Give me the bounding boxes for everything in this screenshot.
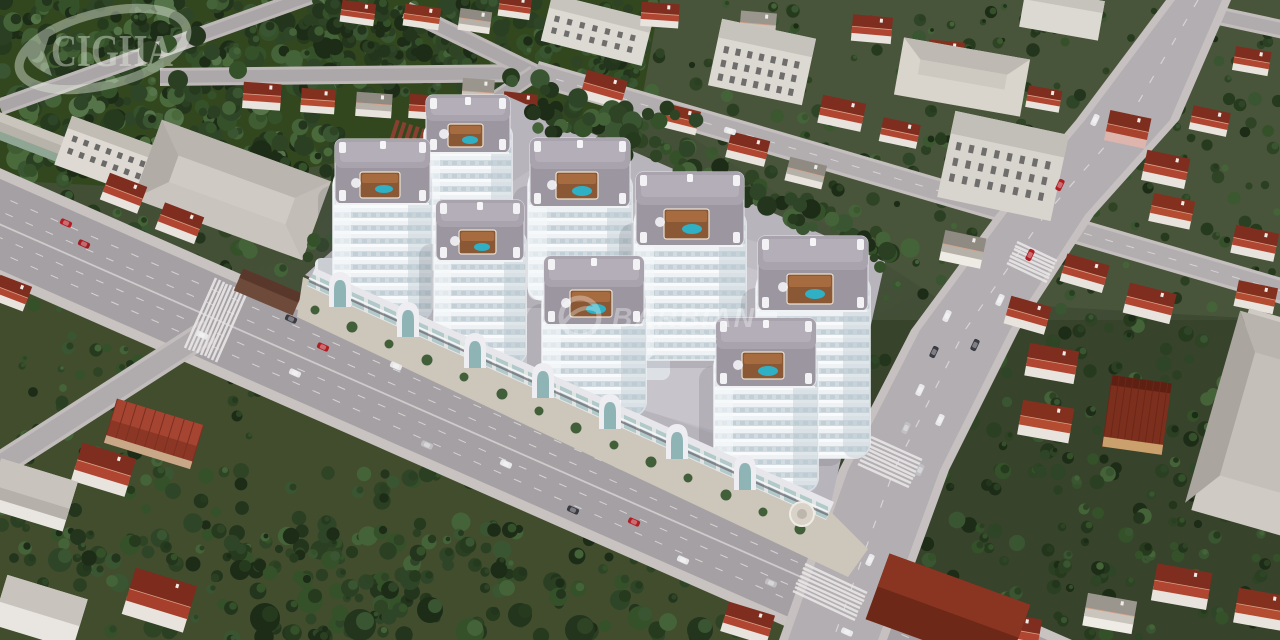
svg-text:MÓVEIS: MÓVEIS bbox=[655, 331, 722, 344]
svg-text:BARBIAN: BARBIAN bbox=[612, 302, 756, 333]
svg-text:CIGHA: CIGHA bbox=[51, 25, 173, 76]
